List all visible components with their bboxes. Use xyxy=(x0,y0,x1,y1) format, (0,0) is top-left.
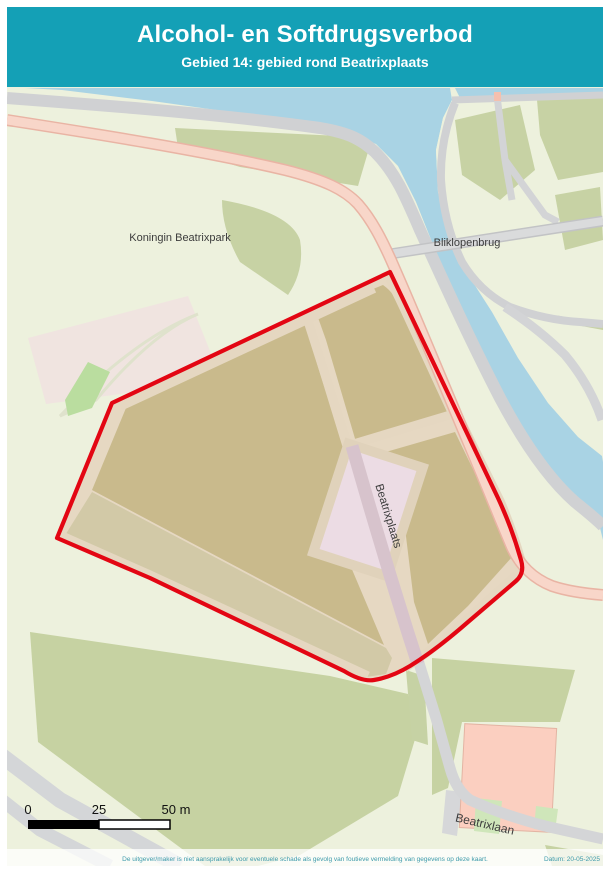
scale-tick-50m: 50 m xyxy=(162,802,191,817)
label-park: Koningin Beatrixpark xyxy=(129,232,231,244)
scale-tick-25: 25 xyxy=(92,802,106,817)
footer-date: Datum: 20-05-2025 xyxy=(544,856,600,863)
page-title: Alcohol- en Softdrugsverbod xyxy=(7,21,603,49)
header-banner: Alcohol- en Softdrugsverbod Gebied 14: g… xyxy=(7,7,603,87)
scale-tick-0: 0 xyxy=(24,802,31,817)
scale-bar-black-half xyxy=(28,820,99,829)
page-subtitle: Gebied 14: gebied rond Beatrixplaats xyxy=(7,54,603,70)
label-bridge: Bliklopenbrug xyxy=(434,237,501,249)
map-container: Koningin Beatrixpark Bliklopenbrug Beatr… xyxy=(7,87,603,866)
map-svg: Koningin Beatrixpark Bliklopenbrug Beatr… xyxy=(7,87,603,866)
footer-disclaimer: De uitgever/maker is niet aansprakelijk … xyxy=(122,856,488,863)
scale-bar-white-half xyxy=(99,820,170,829)
footer-band: De uitgever/maker is niet aansprakelijk … xyxy=(7,849,603,866)
leaflet-page: Alcohol- en Softdrugsverbod Gebied 14: g… xyxy=(0,0,610,879)
